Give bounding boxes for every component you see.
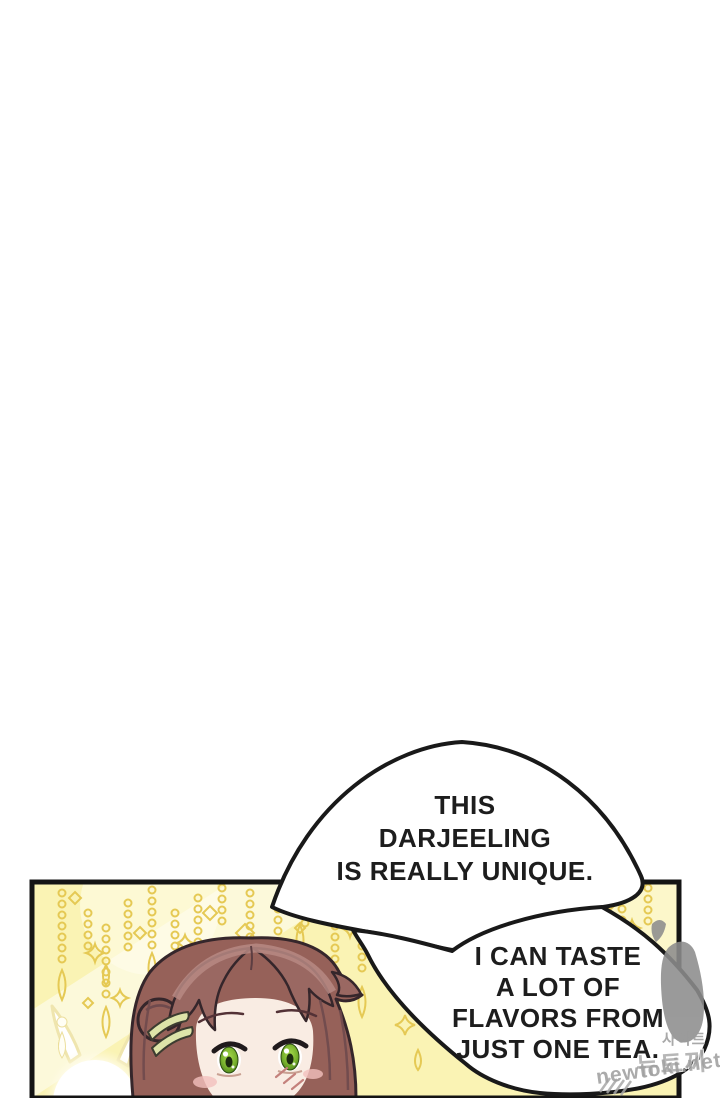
bubble-2-line: A LOT OF	[430, 972, 686, 1003]
bubble-1-line: DARJEELING	[285, 822, 645, 855]
bubble-2-line: I CAN TASTE	[430, 941, 686, 972]
comic-artwork	[0, 0, 720, 1098]
bubble-2-line: JUST ONE TEA.	[430, 1034, 686, 1065]
blush	[193, 1076, 217, 1088]
character-illustration	[131, 938, 362, 1098]
bubble-2-line: FLAVORS FROM	[430, 1003, 686, 1034]
speech-bubble-2-text: I CAN TASTE A LOT OF FLAVORS FROM JUST O…	[430, 941, 686, 1065]
comic-page: THIS DARJEELING IS REALLY UNIQUE. I CAN …	[0, 0, 720, 1098]
bubble-1-line: THIS	[285, 789, 645, 822]
speech-bubble-1-text: THIS DARJEELING IS REALLY UNIQUE.	[285, 789, 645, 888]
bubble-1-line: IS REALLY UNIQUE.	[285, 855, 645, 888]
blush	[303, 1069, 323, 1079]
